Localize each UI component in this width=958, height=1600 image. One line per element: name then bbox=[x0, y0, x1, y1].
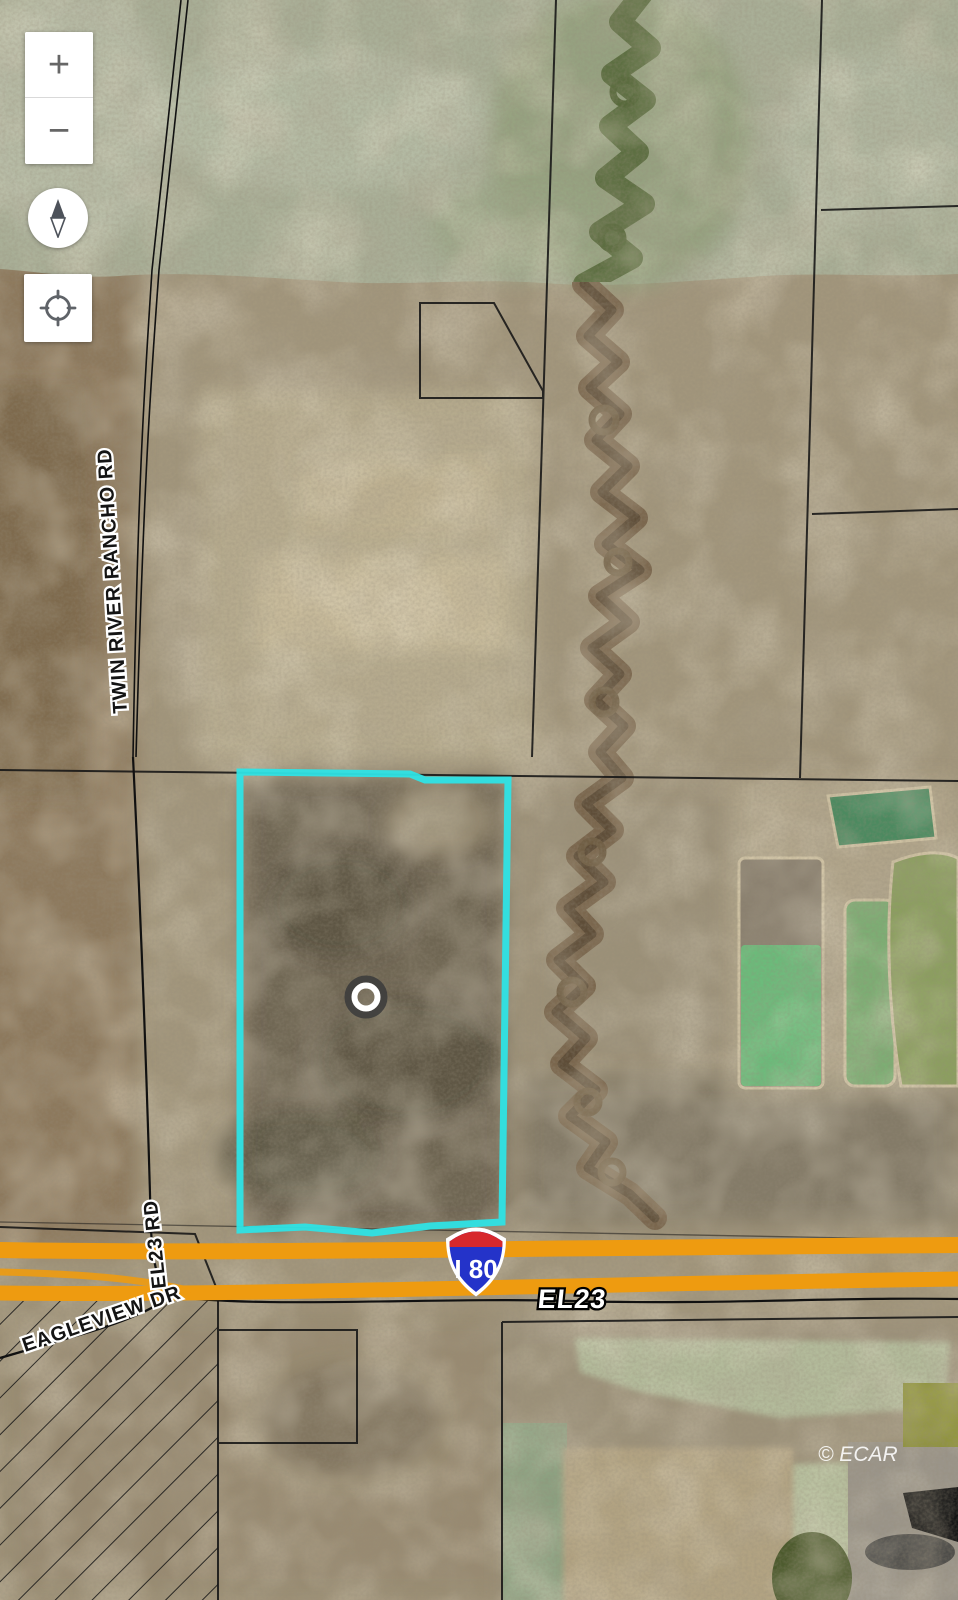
zoom-out-button[interactable]: − bbox=[25, 98, 93, 164]
shield-route-text: I 80 bbox=[454, 1254, 497, 1284]
attribution-watermark: © ECAR bbox=[818, 1443, 898, 1466]
label-el23: EL23 bbox=[536, 1283, 608, 1314]
zoom-control: + − bbox=[25, 32, 93, 164]
zoom-in-button[interactable]: + bbox=[25, 32, 93, 98]
crosshair-icon bbox=[39, 289, 77, 327]
map-canvas[interactable]: I 80 TWIN RIVER RANCHO RD EL23 RD EAGLEV… bbox=[0, 0, 958, 1600]
compass-button[interactable] bbox=[28, 188, 88, 248]
compass-needle-icon bbox=[49, 198, 67, 238]
locate-button[interactable] bbox=[24, 274, 92, 342]
